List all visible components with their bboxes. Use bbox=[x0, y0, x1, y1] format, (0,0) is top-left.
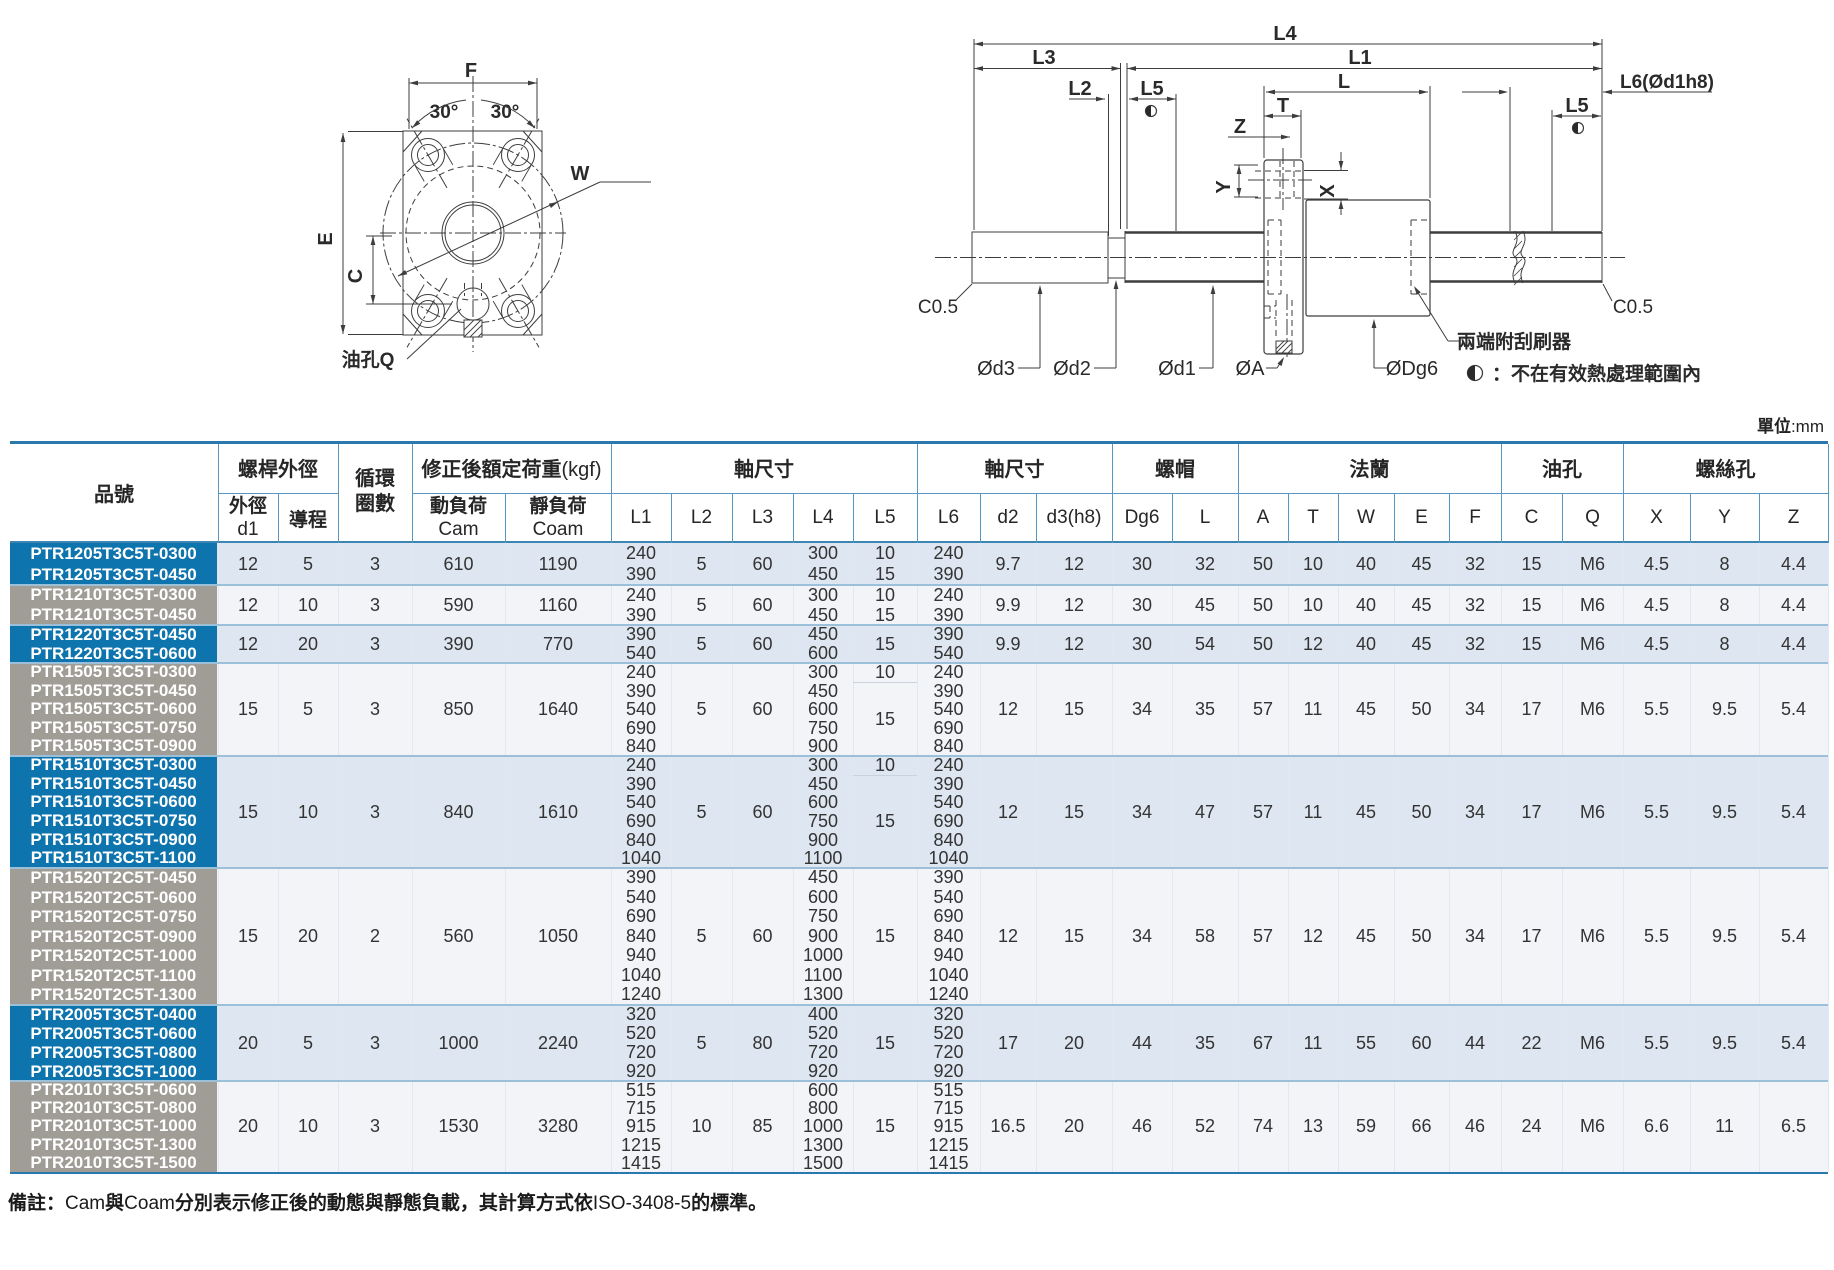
svg-text:C0.5: C0.5 bbox=[1613, 297, 1653, 318]
svg-text:L6(Ød1h8): L6(Ød1h8) bbox=[1620, 72, 1714, 93]
svg-text:：不在有效熱處理範圍內: ：不在有效熱處理範圍內 bbox=[1492, 362, 1701, 385]
svg-text:L1: L1 bbox=[1348, 47, 1371, 69]
svg-text:E: E bbox=[315, 232, 337, 245]
svg-text:T: T bbox=[1277, 95, 1289, 117]
svg-text:Ød3: Ød3 bbox=[977, 358, 1015, 380]
svg-text:L2: L2 bbox=[1068, 78, 1091, 100]
svg-text:F: F bbox=[465, 60, 477, 82]
svg-text:Ød2: Ød2 bbox=[1053, 358, 1091, 380]
svg-text:L3: L3 bbox=[1032, 47, 1055, 69]
svg-text:Y: Y bbox=[1213, 180, 1235, 194]
svg-text:W: W bbox=[571, 163, 590, 185]
svg-text:C: C bbox=[345, 269, 367, 283]
svg-text:X: X bbox=[1317, 184, 1339, 198]
svg-text:L5: L5 bbox=[1140, 78, 1163, 100]
svg-text:兩端附刮刷器: 兩端附刮刷器 bbox=[1457, 330, 1572, 353]
svg-text:ØDg6: ØDg6 bbox=[1386, 358, 1438, 380]
svg-text:L5: L5 bbox=[1565, 95, 1588, 117]
svg-text:C0.5: C0.5 bbox=[918, 297, 958, 318]
svg-text:L: L bbox=[1338, 71, 1350, 93]
svg-text:Ød1: Ød1 bbox=[1158, 358, 1196, 380]
svg-text:Z: Z bbox=[1234, 116, 1246, 138]
svg-text:ØA: ØA bbox=[1236, 358, 1266, 380]
svg-text:30°: 30° bbox=[491, 102, 520, 123]
svg-text:油孔Q: 油孔Q bbox=[342, 349, 395, 371]
svg-text:L4: L4 bbox=[1273, 23, 1297, 45]
